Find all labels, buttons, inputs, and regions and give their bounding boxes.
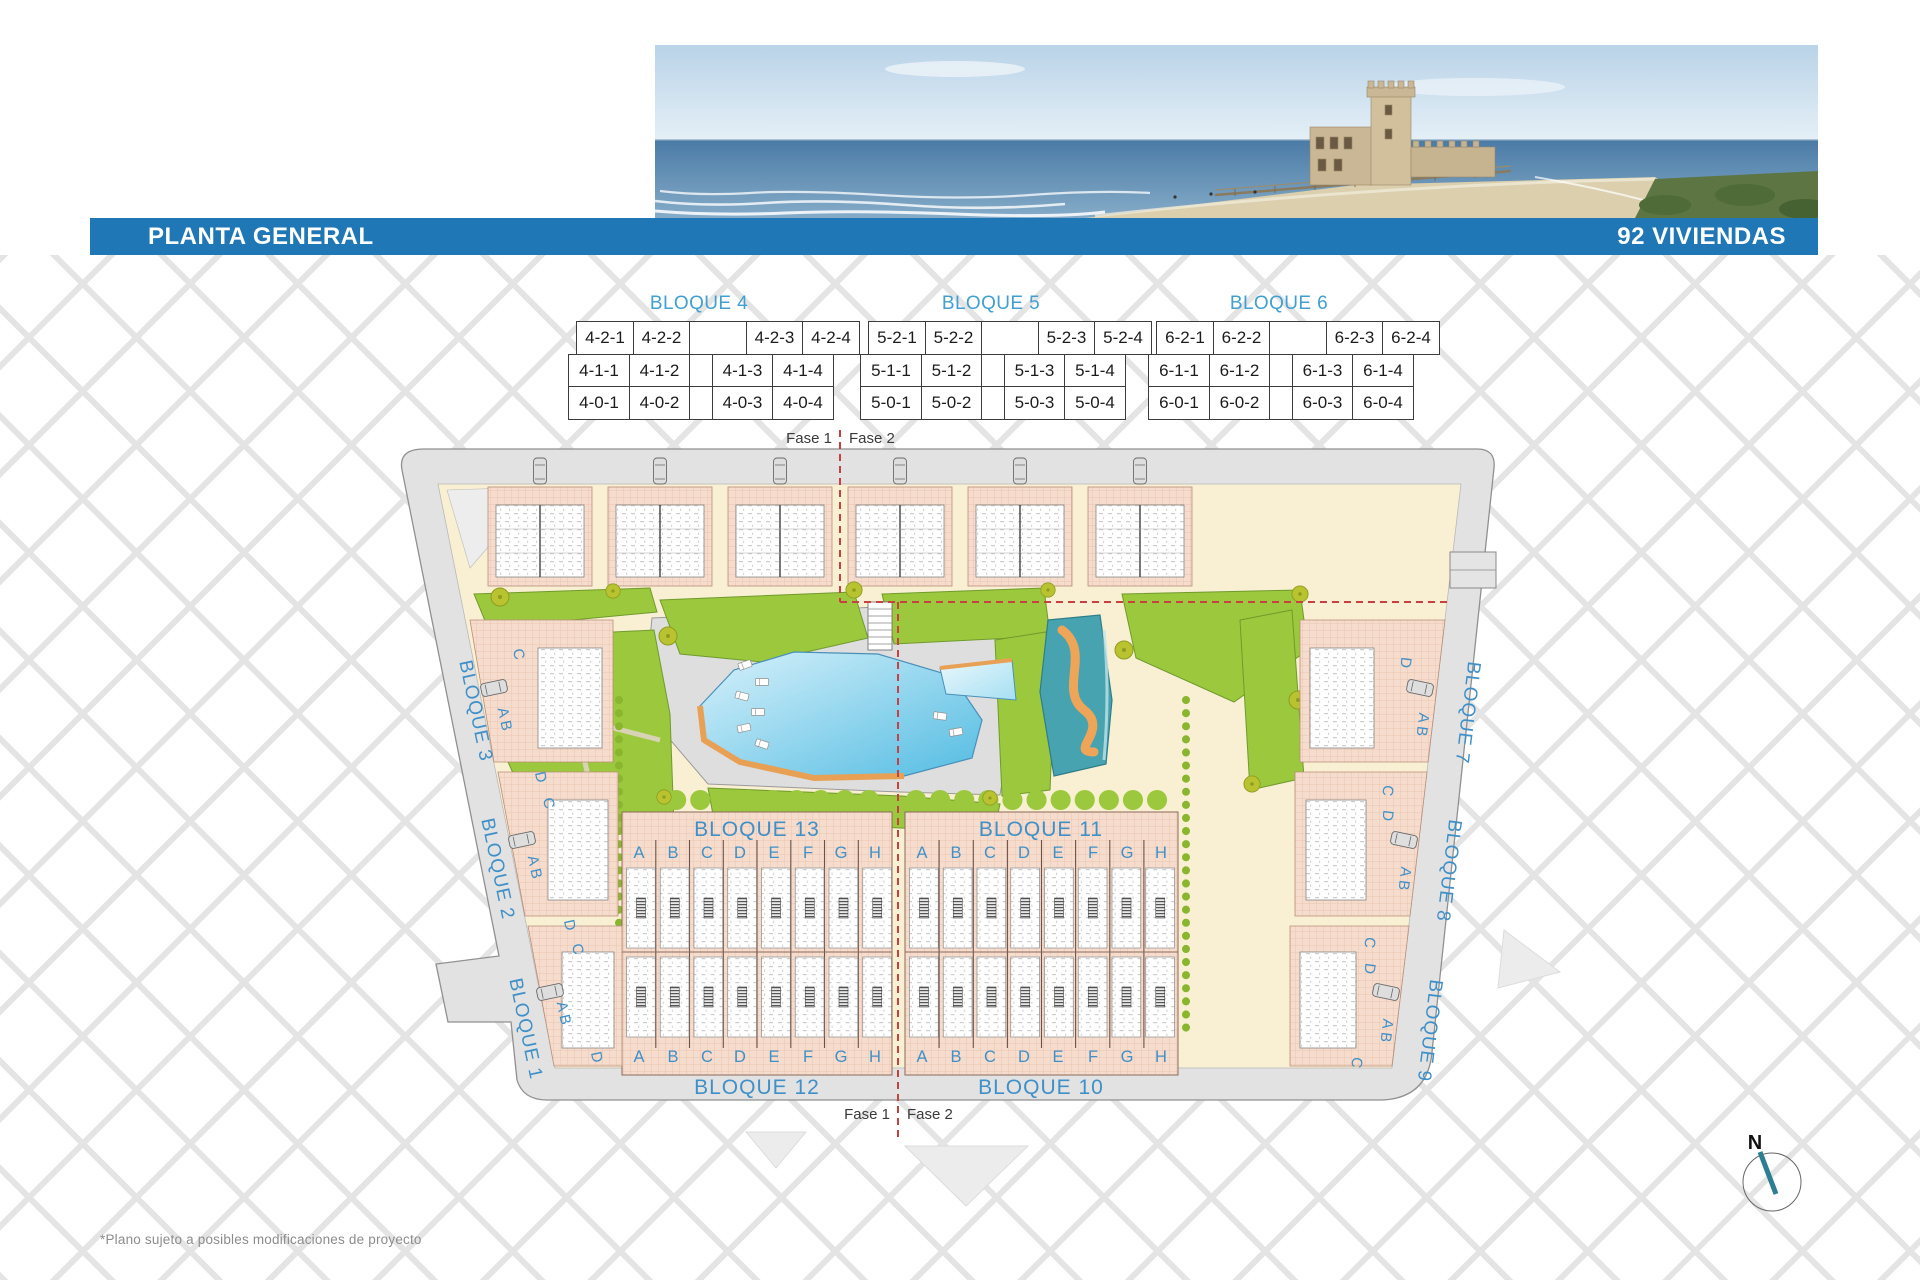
unit-cell: 5-2-3 — [1038, 321, 1096, 355]
unit-cell-spacer — [689, 354, 713, 388]
unit-cell: 6-1-2 — [1209, 354, 1271, 388]
unit-cell: 6-0-1 — [1148, 386, 1210, 420]
unit-letter: A — [633, 844, 644, 862]
unit-cell: 5-0-2 — [921, 386, 983, 420]
unit-cell: 5-2-1 — [868, 321, 926, 355]
unit-cell: 4-2-1 — [576, 321, 634, 355]
unit-letter: E — [1052, 1048, 1063, 1066]
unit-letter: B — [950, 1048, 961, 1066]
compass-needle-icon — [1760, 1152, 1776, 1194]
phase-label-bottom-1: Fase 1 — [844, 1106, 890, 1123]
unit-letter: F — [1088, 844, 1098, 862]
compass: N — [1743, 1132, 1801, 1211]
label-bloque-13: BLOQUE 13 — [694, 818, 820, 841]
unit-letter: H — [869, 844, 881, 862]
unit-cell: 5-2-4 — [1094, 321, 1152, 355]
unit-letter: H — [1155, 844, 1167, 862]
unit-letter: A B — [1395, 866, 1415, 891]
unit-cell: 4-1-3 — [712, 354, 774, 388]
unit-cell: 4-0-2 — [629, 386, 691, 420]
unit-cell-spacer — [1269, 354, 1293, 388]
unit-cell: 5-2-2 — [925, 321, 983, 355]
unit-cell: 5-0-4 — [1064, 386, 1126, 420]
unit-cell: 6-1-4 — [1352, 354, 1414, 388]
unit-cell: 6-0-4 — [1352, 386, 1414, 420]
unit-cell: 6-2-1 — [1156, 321, 1214, 355]
unit-letter: B — [667, 844, 678, 862]
page: PLANTA GENERAL 92 VIVIENDAS BLOQUE 4 4-2… — [0, 0, 1920, 1280]
unit-letter: C — [984, 1048, 996, 1066]
unit-cell-spacer — [981, 386, 1005, 420]
unit-letter: C — [1347, 1056, 1365, 1069]
title-bar: PLANTA GENERAL 92 VIVIENDAS — [90, 218, 1818, 255]
label-bloque-11: BLOQUE 11 — [979, 818, 1103, 841]
unit-cell: 5-1-2 — [921, 354, 983, 388]
unit-letter: C — [1378, 784, 1396, 797]
unit-letter: F — [803, 1048, 813, 1066]
unit-letter: D — [734, 1048, 746, 1066]
unit-table-bloque-5: BLOQUE 5 5-2-1 5-2-2 5-2-3 5-2-4 5-1-1 5… — [860, 293, 1122, 420]
unit-letter: D — [1018, 844, 1030, 862]
unit-letter: B — [950, 844, 961, 862]
unit-cell: 4-2-2 — [633, 321, 691, 355]
unit-letter: H — [1155, 1048, 1167, 1066]
unit-letter: D — [1018, 1048, 1030, 1066]
footnote: *Plano sujeto a posibles modificaciones … — [100, 1232, 422, 1247]
unit-letter: B — [667, 1048, 678, 1066]
unit-cell-spacer — [981, 354, 1005, 388]
table-title: BLOQUE 6 — [1148, 293, 1410, 315]
unit-cell: 6-1-1 — [1148, 354, 1210, 388]
unit-letter: E — [1052, 844, 1063, 862]
unit-letter: G — [1121, 844, 1134, 862]
section-bloque-13-12 — [622, 812, 892, 1075]
unit-cell: 4-1-1 — [568, 354, 630, 388]
phase-label-top-1: Fase 1 — [786, 430, 832, 447]
unit-letter: E — [768, 844, 779, 862]
unit-cell: 5-1-3 — [1004, 354, 1066, 388]
unit-letter: D — [1378, 809, 1396, 822]
unit-cell-spacer — [1269, 321, 1327, 355]
unit-letter: A — [916, 844, 927, 862]
table-title: BLOQUE 5 — [860, 293, 1122, 315]
pool-stairs — [868, 602, 892, 650]
unit-letter: C — [984, 844, 996, 862]
unit-letter: G — [835, 1048, 848, 1066]
units-count-title: 92 VIVIENDAS — [1617, 223, 1818, 251]
unit-letter: G — [1121, 1048, 1134, 1066]
unit-cell: 6-2-3 — [1326, 321, 1384, 355]
unit-letter: D — [1396, 656, 1414, 669]
unit-cell: 6-0-2 — [1209, 386, 1271, 420]
unit-cell: 4-2-3 — [746, 321, 804, 355]
unit-cell: 5-0-1 — [860, 386, 922, 420]
phase-label-bottom-2: Fase 2 — [907, 1106, 953, 1123]
unit-cell-spacer — [689, 386, 713, 420]
unit-letter: C — [701, 1048, 713, 1066]
unit-cell-spacer — [1269, 386, 1293, 420]
unit-table-bloque-4: BLOQUE 4 4-2-1 4-2-2 4-2-3 4-2-4 4-1-1 4… — [568, 293, 830, 420]
compass-north-label: N — [1748, 1132, 1762, 1154]
table-title: BLOQUE 4 — [568, 293, 830, 315]
unit-letter: F — [1088, 1048, 1098, 1066]
unit-letter: C — [1360, 936, 1378, 949]
unit-letter: A — [633, 1048, 644, 1066]
unit-cell: 5-1-1 — [860, 354, 922, 388]
unit-cell: 6-2-4 — [1382, 321, 1440, 355]
unit-letter: E — [768, 1048, 779, 1066]
unit-cell: 5-1-4 — [1064, 354, 1126, 388]
section-bloque-11-10 — [905, 812, 1178, 1075]
unit-cell: 6-1-3 — [1292, 354, 1354, 388]
unit-letter: F — [803, 844, 813, 862]
label-bloque-12: BLOQUE 12 — [694, 1076, 820, 1099]
unit-letter: A — [916, 1048, 927, 1066]
unit-cell: 4-2-4 — [802, 321, 860, 355]
unit-letter: A B — [1377, 1018, 1397, 1043]
unit-cell: 5-0-3 — [1004, 386, 1066, 420]
unit-cell: 4-0-3 — [712, 386, 774, 420]
page-title: PLANTA GENERAL — [90, 223, 374, 251]
unit-letter: D — [734, 844, 746, 862]
unit-letter: D — [1360, 962, 1378, 975]
unit-cell: 4-1-2 — [629, 354, 691, 388]
unit-letter: C — [701, 844, 713, 862]
phase-label-top-2: Fase 2 — [849, 430, 895, 447]
unit-cell: 6-2-2 — [1213, 321, 1271, 355]
unit-cell: 4-0-4 — [772, 386, 834, 420]
unit-table-bloque-6: BLOQUE 6 6-2-1 6-2-2 6-2-3 6-2-4 6-1-1 6… — [1148, 293, 1410, 420]
unit-letter: H — [869, 1048, 881, 1066]
unit-cell: 6-0-3 — [1292, 386, 1354, 420]
site-plan: Fase 1 Fase 2 Fase 1 Fase 2 BLOQUE 13 BL… — [0, 0, 1920, 1280]
unit-letter: A B — [1413, 712, 1433, 737]
unit-cell-spacer — [981, 321, 1039, 355]
unit-letter: G — [835, 844, 848, 862]
label-bloque-10: BLOQUE 10 — [978, 1076, 1104, 1099]
unit-cell: 4-0-1 — [568, 386, 630, 420]
unit-cell-spacer — [689, 321, 747, 355]
unit-cell: 4-1-4 — [772, 354, 834, 388]
